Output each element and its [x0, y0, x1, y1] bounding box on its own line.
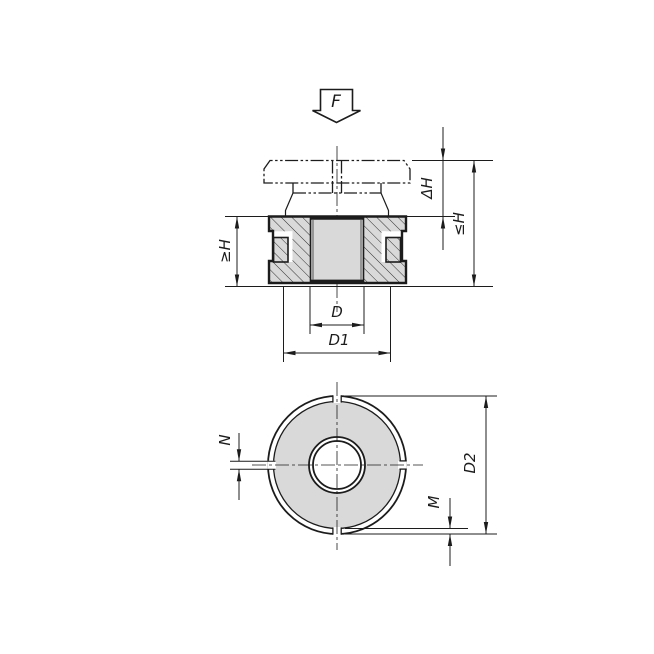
force-label: F	[331, 92, 341, 112]
left-spring-tongue	[274, 238, 289, 263]
arrow-height-min-top	[235, 217, 239, 229]
dim-label-core-diameter: D1	[328, 331, 349, 349]
arrow-outer-bottom	[484, 522, 488, 534]
arrow-travel-bottom	[441, 217, 445, 229]
arrow-slot-width-lower	[237, 469, 241, 481]
arrow-rim-depth-upper	[448, 517, 452, 529]
arrow-slot-width-upper	[237, 449, 241, 461]
right-spring-tongue	[386, 238, 401, 263]
force-arrow: F	[313, 90, 361, 123]
arrow-bore-left	[310, 323, 322, 327]
dim-label-height-max: ≤H	[450, 212, 468, 236]
dim-label-bore-diameter: D	[331, 303, 343, 321]
arrow-travel-top	[441, 149, 445, 161]
arrow-core-left	[284, 351, 296, 355]
arrow-height-min-bottom	[235, 275, 239, 287]
dim-label-height-min: ≥H	[216, 239, 234, 263]
center-bore	[311, 217, 364, 284]
dim-label-travel: ΔH	[418, 177, 436, 200]
arrow-bore-right	[352, 323, 364, 327]
arrow-core-right	[379, 351, 391, 355]
technical-drawing: F	[0, 0, 654, 654]
dim-label-slot-width: N	[216, 434, 234, 445]
arrow-rim-depth-lower	[448, 534, 452, 546]
top-view: D2 M N	[216, 382, 497, 566]
section-view: F	[216, 90, 493, 363]
dim-label-outer-diameter: D2	[461, 452, 479, 473]
arrow-outer-top	[484, 396, 488, 408]
body-section	[269, 217, 406, 284]
arrow-height-max-top	[472, 161, 476, 173]
drawing-canvas: F	[0, 0, 654, 654]
arrow-height-max-bottom	[472, 275, 476, 287]
dim-label-rim-depth: M	[425, 495, 443, 508]
